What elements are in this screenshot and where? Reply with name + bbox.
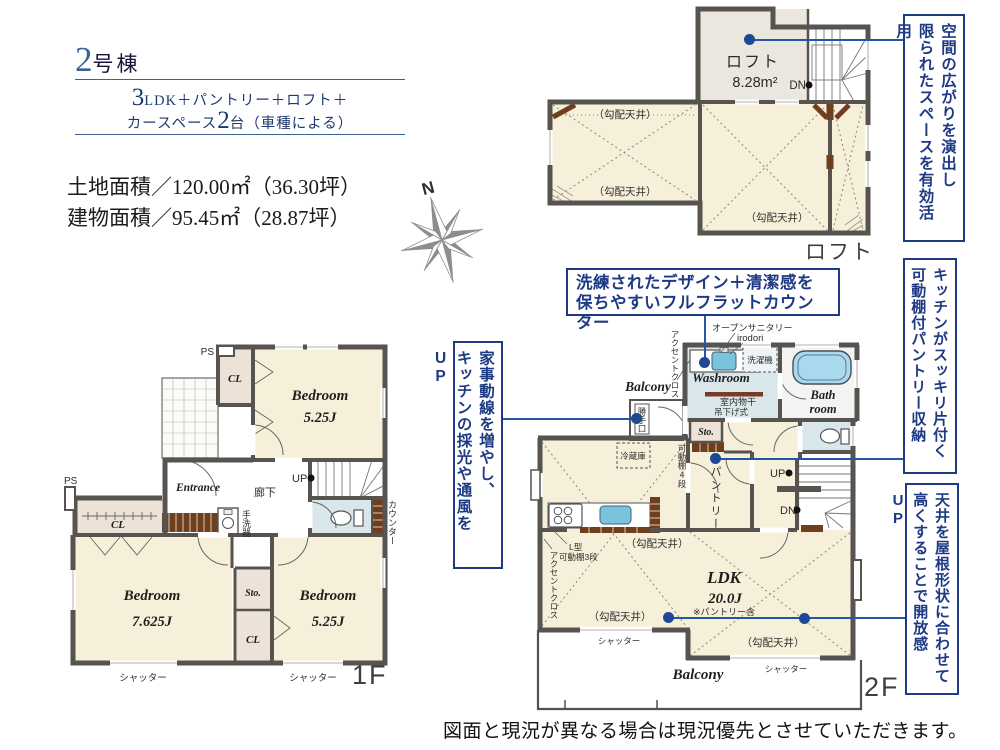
bath-fixtures	[793, 351, 851, 384]
connector-dot-pantry	[710, 453, 721, 464]
f2-dn-label: DN	[780, 505, 796, 517]
connector-dot-housework	[631, 413, 642, 424]
closet-label: CL	[228, 373, 242, 385]
bedroom3-size: 5.25J	[312, 614, 345, 630]
title-rule-top	[75, 79, 405, 80]
bedroom2-size: 7.625J	[132, 614, 173, 630]
f2-up-dot	[786, 470, 793, 477]
loft-room-label: ロフト	[726, 54, 780, 71]
compass-light-points	[390, 187, 494, 294]
washer-label: 洗濯機	[747, 355, 773, 365]
loft-dn-label: DN	[789, 80, 806, 92]
building-area: 建物面積／95.45㎡（28.87坪）	[67, 203, 361, 234]
compass-north-label: N	[420, 178, 437, 200]
ps-label: PS	[64, 476, 78, 487]
compass-rose-icon: N	[390, 172, 494, 296]
accent-cloth-label: アクセントクロス	[670, 330, 680, 398]
callout-pantry-line2: 可動棚付パントリー収納	[907, 267, 929, 465]
loft-rooms	[550, 9, 868, 233]
closet-label: CL	[246, 634, 260, 646]
plan-type-line2: カースペース2台（車種による）	[75, 107, 405, 135]
f1-floor-label: 1F	[352, 660, 388, 691]
loft-plan: ロフト 8.28m² DN （勾配天井） （勾配天井） （勾配天井）	[545, 5, 890, 265]
irodori-label: irodori	[737, 333, 763, 344]
washroom-label: Washroom	[692, 370, 750, 385]
lshelf-label-2: 可動棚3段	[559, 552, 598, 562]
corridor-label: 廊下	[254, 485, 276, 499]
connector-housework	[502, 418, 637, 420]
carspace-number: 2	[217, 107, 230, 134]
pantry-label: パントリー	[709, 466, 722, 531]
carspace-note: 台（車種による）	[230, 116, 354, 132]
sloped-ceiling-label: （勾配天井）	[594, 185, 657, 198]
ldk-label: LDK	[706, 568, 743, 587]
bedroom1-size: 5.25J	[304, 410, 337, 426]
sloped-ceiling-label: （勾配天井）	[746, 211, 809, 224]
callout-ceiling-line1: 天井を屋根形状に合わせて	[930, 492, 952, 686]
unit-suffix: 号棟	[93, 52, 141, 76]
connector-loft	[755, 39, 905, 41]
unit-number: 2	[75, 40, 93, 79]
f2-up-label: UP	[770, 468, 785, 480]
shutter-label: シャッター	[765, 664, 808, 674]
lshelf-label-1: L型	[569, 542, 583, 552]
callout-pantry-line1: キッチンがスッキリ片付く	[928, 267, 950, 465]
second-floor-plan: オープンサニタリー irodori アクセントクロス 洗濯機 Washroom …	[525, 318, 915, 718]
hanging-type-label: 吊下げ式	[714, 407, 749, 417]
balcony-top-label: Balcony	[624, 379, 672, 394]
callout-housework-line1: 家事動線を増やし、	[474, 350, 496, 560]
area-info: 土地面積／120.00㎡（36.30坪） 建物面積／95.45㎡（28.87坪）	[67, 172, 361, 234]
title-rule-bottom	[75, 134, 405, 135]
connector-dot-counter	[699, 357, 710, 368]
callout-ceiling-line2: 高くすることで開放感UP	[887, 492, 931, 686]
f2-toilet	[821, 429, 850, 444]
unit-title: 2号棟	[75, 40, 141, 80]
f2-dn-dot	[794, 507, 801, 514]
callout-ceiling: 天井を屋根形状に合わせて 高くすることで開放感UP	[905, 483, 959, 695]
sloped-ceiling-label: （勾配天井）	[626, 537, 689, 550]
dn-dot	[806, 82, 813, 89]
fridge-label: 冷蔵庫	[620, 451, 646, 461]
callout-loft-space-line1: 空間の広がりを演出し	[936, 23, 958, 233]
indoor-drying-label: 室内物干	[720, 396, 756, 407]
connector-pantry	[716, 458, 905, 460]
hand-basin	[218, 508, 238, 535]
f2-storage-label: Sto.	[698, 427, 714, 438]
up-dot	[308, 475, 315, 482]
shutter-label: シャッター	[598, 636, 641, 646]
ps-label: PS	[201, 347, 215, 358]
shutter-label: シャッター	[289, 673, 337, 684]
bedroom1-label: Bedroom	[291, 388, 349, 404]
counter-label: カウンター	[387, 500, 397, 545]
carspace-text: カースペース	[127, 116, 218, 132]
ldk-note-label: ※パントリー含	[693, 606, 755, 617]
callout-counter-line2: 保ちやすいフルフラットカウンター	[576, 293, 830, 333]
entrance-label: Entrance	[175, 482, 220, 494]
bathroom-label-2: room	[809, 402, 836, 416]
connector-dot-ceiling-2	[799, 613, 810, 624]
accent-cloth-label-2: アクセントクロス	[549, 551, 559, 619]
shutter-label: シャッター	[119, 673, 167, 684]
callout-counter: 洗練されたデザイン＋清潔感を 保ちやすいフルフラットカウンター	[566, 268, 840, 316]
bathroom-label-1: Bath	[809, 388, 835, 402]
balcony-bottom-label: Balcony	[672, 667, 724, 683]
bedroom2-label: Bedroom	[123, 588, 181, 604]
connector-ceiling	[669, 617, 907, 619]
callout-counter-line1: 洗練されたデザイン＋清潔感を	[576, 273, 830, 293]
genkan-step	[162, 513, 218, 532]
loft-floor-label: ロフト	[805, 236, 874, 266]
callout-housework-line2: キッチンの採光や通風をUP	[429, 350, 474, 560]
sloped-ceiling-label: （勾配天井）	[589, 610, 652, 623]
callout-loft-space-line2: 限られたスペースを有効活用	[891, 23, 936, 233]
bedroom3-label: Bedroom	[299, 588, 357, 604]
land-area: 土地面積／120.00㎡（36.30坪）	[67, 172, 361, 203]
first-floor-plan: PS PS CL CL CL Sto. Bedroom 5.25J Bedroo…	[60, 340, 400, 700]
shelf4-label: 可動棚4段	[677, 444, 687, 489]
storage-label: Sto.	[245, 588, 261, 599]
up-label: UP	[292, 473, 307, 485]
connector-dot-loft	[744, 34, 755, 45]
floorplan-flyer: 2号棟 3LDK＋パントリー＋ロフト＋ カースペース2台（車種による） 土地面積…	[0, 0, 1000, 750]
disclaimer-text: 図面と現況が異なる場合は現況優先とさせていただきます。	[443, 716, 968, 743]
connector-dot-ceiling-1	[663, 612, 674, 623]
callout-loft-space: 空間の広がりを演出し 限られたスペースを有効活用	[903, 14, 965, 242]
ldk-size-label: 20.0J	[707, 591, 742, 607]
hand-basin-label: 手洗器	[241, 509, 251, 537]
callout-housework: 家事動線を増やし、 キッチンの採光や通風をUP	[453, 341, 503, 569]
callout-pantry: キッチンがスッキリ片付く 可動棚付パントリー収納	[903, 258, 957, 474]
sloped-ceiling-label: （勾配天井）	[594, 108, 657, 121]
stair-sill	[801, 525, 823, 532]
sloped-ceiling-label: （勾配天井）	[742, 636, 805, 649]
closet-label: CL	[111, 519, 125, 531]
loft-area-label: 8.28m²	[732, 75, 777, 91]
